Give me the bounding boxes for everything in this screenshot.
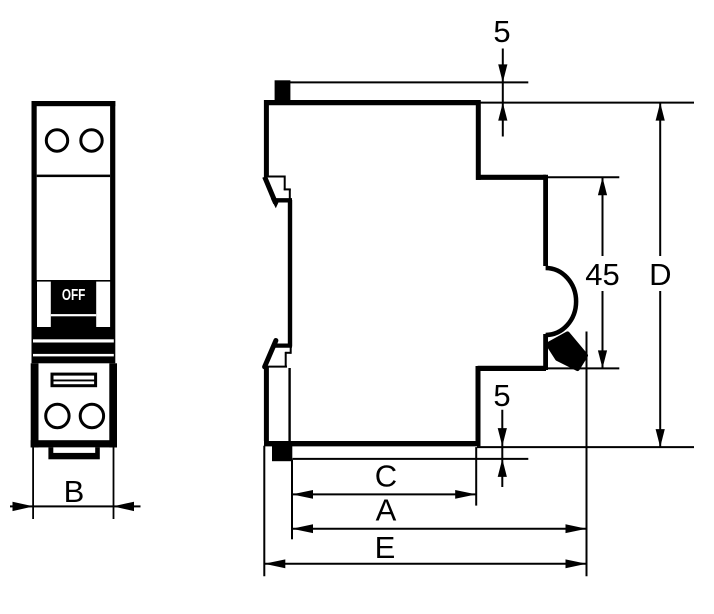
svg-text:D: D (649, 257, 671, 292)
svg-text:B: B (64, 474, 85, 509)
svg-text:5: 5 (493, 14, 510, 49)
svg-text:OFF: OFF (62, 287, 86, 304)
svg-text:A: A (376, 493, 397, 528)
svg-text:C: C (375, 459, 397, 494)
svg-text:45: 45 (585, 257, 619, 292)
svg-text:E: E (375, 530, 396, 565)
svg-text:5: 5 (493, 378, 510, 413)
